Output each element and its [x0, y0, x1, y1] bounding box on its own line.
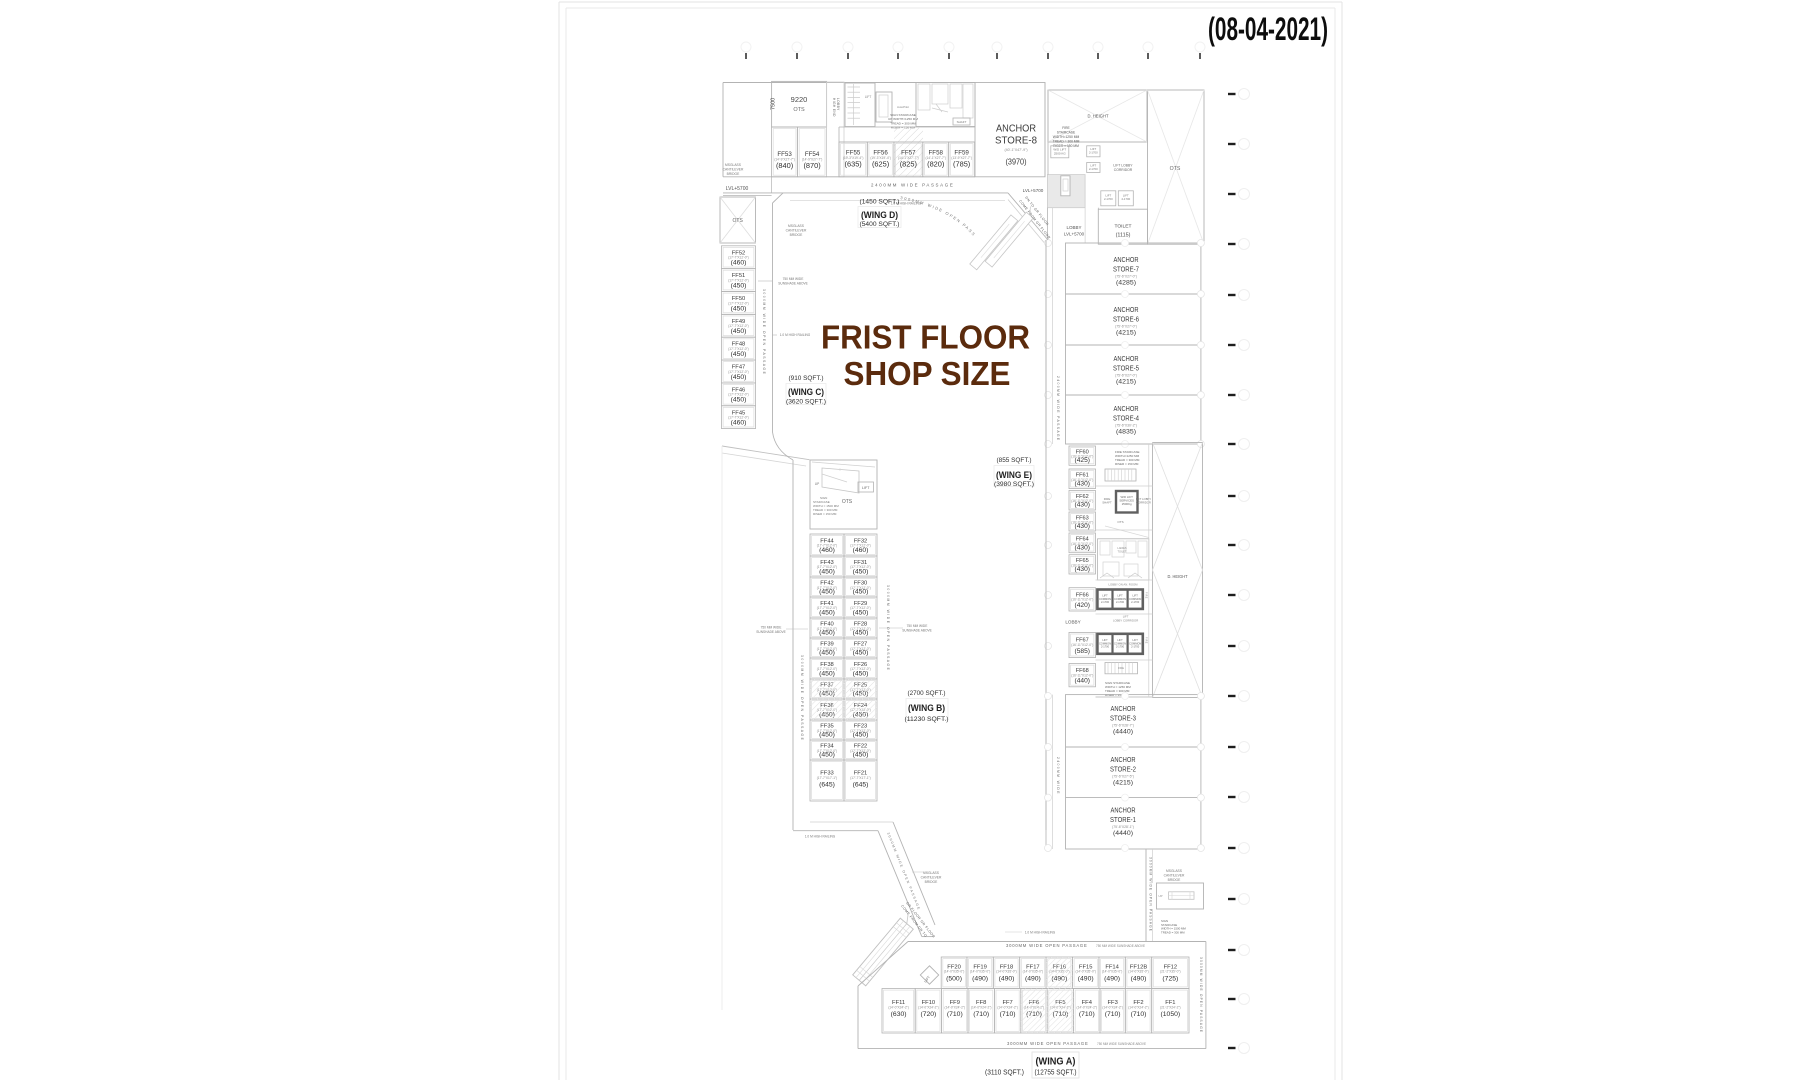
svg-text:(430): (430) [1075, 480, 1090, 487]
svg-text:(450): (450) [819, 670, 835, 677]
svg-text:OTS: OTS [1170, 166, 1181, 172]
svg-text:ANCHOR: ANCHOR [1111, 806, 1136, 815]
svg-text:ANCHOR: ANCHOR [1114, 354, 1139, 363]
svg-text:BRIDGE: BRIDGE [1168, 878, 1181, 882]
svg-text:(08-04-2021): (08-04-2021) [1208, 11, 1328, 47]
svg-text:STORE-7: STORE-7 [1113, 265, 1139, 274]
svg-text:CANTILEVER: CANTILEVER [1164, 874, 1185, 878]
svg-text:UP: UP [1159, 894, 1163, 898]
svg-text:LVL+5700: LVL+5700 [1023, 188, 1044, 193]
svg-text:LVL+5700: LVL+5700 [726, 186, 749, 192]
svg-text:STORE-8: STORE-8 [995, 136, 1037, 147]
svg-text:(4440): (4440) [1113, 729, 1133, 736]
svg-text:(14'-0"X24'-2"): (14'-0"X24'-2") [888, 1005, 909, 1009]
svg-text:(490): (490) [972, 975, 988, 982]
svg-text:(450): (450) [853, 589, 869, 596]
svg-text:(450): (450) [819, 589, 835, 596]
svg-text:STORE-1: STORE-1 [1110, 815, 1136, 824]
svg-text:(5400 SQFT.): (5400 SQFT.) [860, 221, 900, 228]
svg-text:(14'-0"X24'-2"): (14'-0"X24'-2") [971, 1005, 992, 1009]
svg-text:2-1700: 2-1700 [1101, 645, 1110, 649]
svg-text:2-1700: 2-1700 [1131, 600, 1140, 604]
svg-text:(440): (440) [1075, 678, 1090, 685]
svg-text:(4835): (4835) [1116, 429, 1136, 436]
svg-text:OTS: OTS [733, 218, 744, 224]
svg-text:(450): (450) [731, 328, 747, 335]
svg-text:(450): (450) [731, 374, 747, 381]
svg-text:(630): (630) [891, 1011, 907, 1018]
svg-text:(450): (450) [731, 397, 747, 404]
svg-text:(75'-6"X27'-0"): (75'-6"X27'-0") [1115, 275, 1137, 279]
svg-text:(WING D): (WING D) [861, 210, 898, 220]
svg-text:(710): (710) [1105, 1011, 1121, 1018]
svg-text:(450): (450) [731, 351, 747, 358]
svg-text:(460): (460) [731, 260, 747, 267]
svg-text:2400MM WIDE PASSAGE: 2400MM WIDE PASSAGE [1056, 376, 1060, 442]
svg-text:(4215): (4215) [1116, 330, 1136, 337]
svg-text:LIFT LOBBY: LIFT LOBBY [1113, 164, 1133, 168]
svg-text:MSGLASS: MSGLASS [1166, 869, 1183, 873]
svg-text:(75'-6"X28'-1"): (75'-6"X28'-1") [1112, 825, 1134, 829]
svg-text:(75'-6"X27'-0"): (75'-6"X27'-0") [1115, 325, 1137, 329]
svg-text:2400MM WIDE: 2400MM WIDE [1056, 757, 1060, 795]
svg-text:STAIRCASE: STAIRCASE [1057, 131, 1076, 135]
svg-text:(460): (460) [819, 547, 835, 554]
svg-text:750 MM WIDE: 750 MM WIDE [783, 277, 804, 281]
svg-text:(1050): (1050) [1161, 1011, 1181, 1018]
svg-text:(14'-0"X24'-2"): (14'-0"X24'-2") [945, 1005, 966, 1009]
svg-text:(450): (450) [819, 630, 835, 637]
svg-text:(WING A): (WING A) [1036, 1056, 1076, 1068]
svg-text:(635): (635) [845, 159, 862, 168]
svg-text:SHAFT: SHAFT [1102, 501, 1112, 505]
svg-text:D. HEIGHT: D. HEIGHT [1168, 574, 1188, 579]
svg-text:1.0 M HIGH RAILING: 1.0 M HIGH RAILING [780, 333, 811, 337]
svg-text:(2700 SQFT.): (2700 SQFT.) [908, 690, 946, 697]
svg-text:SUNSHADE ABOVE: SUNSHADE ABOVE [902, 629, 931, 633]
svg-text:CORRIDOR: CORRIDOR [1114, 168, 1133, 172]
svg-text:STORE-4: STORE-4 [1113, 414, 1139, 423]
svg-text:(450): (450) [853, 568, 869, 575]
svg-text:(14'-0"X24'-2"): (14'-0"X24'-2") [1128, 1005, 1149, 1009]
svg-text:LOBBY CORRIDOR: LOBBY CORRIDOR [1113, 618, 1138, 622]
svg-text:(450): (450) [853, 609, 869, 616]
svg-text:AutoPilot: AutoPilot [897, 105, 909, 109]
svg-text:FIRE: FIRE [1145, 592, 1148, 599]
svg-text:2-1700: 2-1700 [1116, 645, 1125, 649]
svg-text:CANTILEVER: CANTILEVER [723, 168, 744, 172]
svg-text:3000MM WIDE OPEN PASSAGE: 3000MM WIDE OPEN PASSAGE [1007, 1041, 1089, 1046]
svg-text:3000MM WIDE OPEN PASSAGE: 3000MM WIDE OPEN PASSAGE [1006, 943, 1088, 948]
svg-text:(450): (450) [819, 609, 835, 616]
svg-text:(785): (785) [953, 159, 970, 168]
svg-text:(16'-11"X12'-0"): (16'-11"X12'-0") [1071, 643, 1093, 647]
svg-text:MSGLASS: MSGLASS [788, 224, 805, 228]
svg-text:(490): (490) [1025, 975, 1041, 982]
svg-text:3000MM WIDE OPEN PASSAGE: 3000MM WIDE OPEN PASSAGE [1148, 857, 1152, 932]
svg-text:ANCHOR: ANCHOR [1114, 255, 1139, 264]
svg-text:FIRE: FIRE [1062, 126, 1070, 130]
svg-text:(820): (820) [927, 159, 944, 168]
svg-text:CANTILEVER: CANTILEVER [921, 876, 942, 880]
svg-text:(4285): (4285) [1116, 280, 1136, 287]
svg-text:750 MM WIDE: 750 MM WIDE [907, 624, 928, 628]
svg-text:(450): (450) [819, 752, 835, 759]
svg-text:2-1700: 2-1700 [1131, 645, 1140, 649]
svg-text:(14'-0"X35'-0"): (14'-0"X35'-0") [944, 970, 965, 974]
svg-text:(430): (430) [1075, 566, 1090, 573]
svg-text:(11230 SQFT.): (11230 SQFT.) [905, 716, 949, 723]
svg-text:LIFT: LIFT [862, 486, 870, 490]
svg-text:3000MM WIDE OPEN PASSAGE: 3000MM WIDE OPEN PASSAGE [762, 289, 766, 375]
svg-text:STORE-3: STORE-3 [1110, 714, 1136, 723]
svg-text:SUNSHADE ABOVE: SUNSHADE ABOVE [756, 630, 785, 634]
svg-text:(460): (460) [731, 420, 747, 427]
svg-text:(21'-2"X35'-0"): (21'-2"X35'-0") [1160, 970, 1181, 974]
svg-text:ANCHOR: ANCHOR [1114, 404, 1139, 413]
svg-text:LOBBY: LOBBY [1066, 225, 1081, 230]
svg-text:(17'-7"X17'-1"): (17'-7"X17'-1") [817, 776, 838, 780]
svg-text:(450): (450) [853, 752, 869, 759]
svg-text:7500: 7500 [771, 98, 777, 110]
svg-text:STORE-5: STORE-5 [1113, 364, 1139, 373]
svg-text:MSGLASS: MSGLASS [923, 871, 940, 875]
svg-text:(430): (430) [1075, 523, 1090, 530]
svg-text:(460): (460) [853, 547, 869, 554]
svg-text:ANCHOR: ANCHOR [1114, 305, 1139, 314]
svg-text:LOBBY: LOBBY [836, 98, 840, 111]
svg-text:OTS: OTS [1117, 520, 1123, 524]
svg-text:LOBBY: LOBBY [1065, 620, 1080, 625]
svg-text:RISER = 150 MM: RISER = 150 MM [1115, 462, 1139, 466]
svg-text:(3620 SQFT.): (3620 SQFT.) [786, 399, 826, 406]
svg-text:ANCHOR: ANCHOR [996, 124, 1036, 135]
svg-text:(420): (420) [1075, 602, 1090, 609]
svg-text:(14'-0"X35'-0"): (14'-0"X35'-0") [1102, 970, 1123, 974]
svg-text:SHAFT: SHAFT [957, 120, 967, 124]
svg-text:BRIDGE: BRIDGE [727, 172, 740, 176]
svg-text:OTS: OTS [793, 107, 805, 113]
svg-text:(75'-6"X28'-7"): (75'-6"X28'-7") [1112, 724, 1134, 728]
svg-text:TOILET: TOILET [1114, 224, 1131, 230]
svg-text:1.0 M HIGH RAILING: 1.0 M HIGH RAILING [805, 835, 836, 839]
svg-text:(645): (645) [819, 782, 835, 789]
svg-text:2500Kg: 2500Kg [1122, 502, 1132, 506]
svg-text:(450): (450) [731, 305, 747, 312]
svg-text:(WING C): (WING C) [788, 387, 824, 397]
svg-text:750 MM WIDE SUNSHADE ABOVE: 750 MM WIDE SUNSHADE ABOVE [1096, 944, 1146, 948]
svg-text:UP: UP [815, 482, 819, 486]
svg-text:TREAD = 300 MM: TREAD = 300 MM [1053, 140, 1080, 144]
svg-text:(3970): (3970) [1006, 158, 1027, 167]
svg-text:2-1700: 2-1700 [1089, 151, 1098, 155]
svg-text:FRIST FLOOR: FRIST FLOOR [821, 319, 1030, 356]
svg-text:2-1700: 2-1700 [1101, 600, 1110, 604]
svg-text:(450): (450) [819, 650, 835, 657]
svg-text:(14'-0"X35'-0"): (14'-0"X35'-0") [996, 970, 1017, 974]
svg-text:ANCHOR: ANCHOR [1111, 704, 1136, 713]
svg-text:(75'-6"X30'-2"): (75'-6"X30'-2") [1115, 424, 1137, 428]
svg-text:(710): (710) [1000, 1011, 1016, 1018]
svg-text:(WING B): (WING B) [908, 703, 945, 713]
svg-text:2-1700: 2-1700 [1121, 197, 1130, 201]
svg-text:TOILET: TOILET [1117, 550, 1126, 554]
svg-text:(490): (490) [999, 975, 1015, 982]
svg-text:(75'-6"X27'-0"): (75'-6"X27'-0") [1115, 374, 1137, 378]
svg-text:SHOP SIZE: SHOP SIZE [844, 355, 1011, 392]
svg-text:(75'-6"X27'-5"): (75'-6"X27'-5") [1112, 775, 1134, 779]
svg-text:LOBBY ON AN. ROOM: LOBBY ON AN. ROOM [1108, 583, 1138, 587]
svg-text:(4440): (4440) [1113, 830, 1133, 837]
svg-text:(450): (450) [731, 282, 747, 289]
svg-text:(500): (500) [946, 975, 962, 982]
svg-text:2400MM WIDE PASSAGE: 2400MM WIDE PASSAGE [871, 183, 954, 188]
svg-text:D. HEIGHT: D. HEIGHT [1088, 114, 1109, 120]
svg-text:FIRE: FIRE [1145, 637, 1148, 644]
svg-text:(450): (450) [853, 650, 869, 657]
svg-text:(4215): (4215) [1116, 379, 1136, 386]
svg-text:(4215): (4215) [1113, 780, 1133, 787]
svg-text:ANCHOR: ANCHOR [1111, 755, 1136, 764]
svg-text:(12755 SQFT.): (12755 SQFT.) [1035, 1068, 1077, 1077]
svg-text:LVL+5700: LVL+5700 [1064, 232, 1085, 237]
svg-text:2-1700: 2-1700 [1089, 167, 1098, 171]
svg-text:(14'-0"X24'-2"): (14'-0"X24'-2") [997, 1005, 1018, 1009]
svg-text:(585): (585) [1075, 648, 1090, 655]
svg-text:SUNSHADE ABOVE: SUNSHADE ABOVE [778, 282, 807, 286]
svg-text:HIGH END: HIGH END [832, 98, 836, 117]
svg-text:(490): (490) [1131, 975, 1147, 982]
svg-text:OTS: OTS [842, 499, 853, 505]
svg-text:(450): (450) [853, 670, 869, 677]
svg-text:(825): (825) [900, 159, 917, 168]
svg-text:2-1700: 2-1700 [1116, 600, 1125, 604]
svg-text:STORE-6: STORE-6 [1113, 315, 1139, 324]
svg-text:2-1700: 2-1700 [1104, 197, 1113, 201]
svg-text:2500 KG: 2500 KG [1054, 152, 1067, 156]
svg-text:BRIDGE: BRIDGE [790, 233, 803, 237]
svg-text:(910 SQFT.): (910 SQFT.) [789, 375, 824, 382]
svg-text:WIDTH=1250 MM: WIDTH=1250 MM [1053, 135, 1080, 139]
svg-text:(17'-7"X17'-1"): (17'-7"X17'-1") [850, 776, 871, 780]
svg-text:BRIDGE: BRIDGE [925, 880, 938, 884]
svg-text:LIFT: LIFT [865, 95, 872, 99]
svg-text:(450): (450) [853, 630, 869, 637]
svg-text:(710): (710) [947, 1011, 963, 1018]
svg-text:(14'-0"X35'-0"): (14'-0"X35'-0") [1075, 970, 1096, 974]
svg-text:MSGLASS: MSGLASS [725, 163, 742, 167]
svg-text:LADIES: LADIES [1117, 546, 1126, 550]
svg-text:(430): (430) [1075, 502, 1090, 509]
svg-text:STORE-2: STORE-2 [1110, 765, 1136, 774]
svg-text:(14'-0"X24'-2"): (14'-0"X24'-2") [1102, 1005, 1123, 1009]
svg-text:FIRE: FIRE [1118, 666, 1124, 670]
svg-text:(855 SQFT.): (855 SQFT.) [997, 457, 1032, 464]
svg-text:(450): (450) [853, 732, 869, 739]
svg-text:(725): (725) [1162, 975, 1178, 982]
svg-text:(870): (870) [803, 161, 820, 170]
svg-text:(490): (490) [1078, 975, 1094, 982]
svg-text:750 MM WIDE SUNSHADE ABOVE: 750 MM WIDE SUNSHADE ABOVE [1097, 1042, 1147, 1046]
svg-text:(430): (430) [1075, 544, 1090, 551]
svg-text:(14'-0"X24'-2"): (14'-0"X24'-2") [918, 1005, 939, 1009]
svg-text:(1115): (1115) [1116, 233, 1131, 239]
svg-text:9220: 9220 [791, 95, 808, 104]
svg-text:(3110 SQFT.): (3110 SQFT.) [985, 1068, 1024, 1077]
svg-text:750 MM WIDE: 750 MM WIDE [761, 626, 782, 630]
svg-text:(WING E): (WING E) [996, 470, 1032, 480]
svg-text:CANTILEVER: CANTILEVER [786, 229, 807, 233]
svg-text:RISER = 150 MM: RISER = 150 MM [813, 512, 837, 516]
svg-text:(3980 SQFT.): (3980 SQFT.) [994, 481, 1034, 488]
svg-text:1.0 M HIGH RAILING: 1.0 M HIGH RAILING [1025, 931, 1056, 935]
svg-text:3000MM WIDE OPEN PASSAGE: 3000MM WIDE OPEN PASSAGE [800, 655, 804, 741]
svg-text:(14'-0"X35'-0"): (14'-0"X35'-0") [970, 970, 991, 974]
svg-text:(14'-0"X24'-2"): (14'-0"X24'-2") [1077, 1005, 1098, 1009]
svg-text:(710): (710) [1079, 1011, 1095, 1018]
svg-text:(450): (450) [819, 732, 835, 739]
svg-text:(14'-0"X35'-0"): (14'-0"X35'-0") [1023, 970, 1044, 974]
svg-text:3000MM WIDE OPEN PASSAGE: 3000MM WIDE OPEN PASSAGE [1199, 957, 1203, 1033]
svg-text:(840): (840) [776, 161, 793, 170]
svg-text:(450): (450) [819, 568, 835, 575]
svg-text:(625): (625) [872, 159, 889, 168]
svg-text:(710): (710) [1131, 1011, 1147, 1018]
svg-text:(21'-2"X24'-2"): (21'-2"X24'-2") [1160, 1005, 1181, 1009]
svg-text:(490): (490) [1104, 975, 1120, 982]
svg-text:(645): (645) [853, 782, 869, 789]
svg-text:(710): (710) [973, 1011, 989, 1018]
svg-text:(40'-1"X47'-9"): (40'-1"X47'-9") [1004, 148, 1027, 152]
svg-text:TREAD = 300 MM: TREAD = 300 MM [1161, 930, 1185, 934]
svg-text:(425): (425) [1075, 457, 1090, 464]
svg-text:(720): (720) [920, 1011, 936, 1018]
svg-text:(14'-0"X35'-0"): (14'-0"X35'-0") [1128, 970, 1149, 974]
svg-text:(1450 SQFT.): (1450 SQFT.) [860, 199, 900, 206]
